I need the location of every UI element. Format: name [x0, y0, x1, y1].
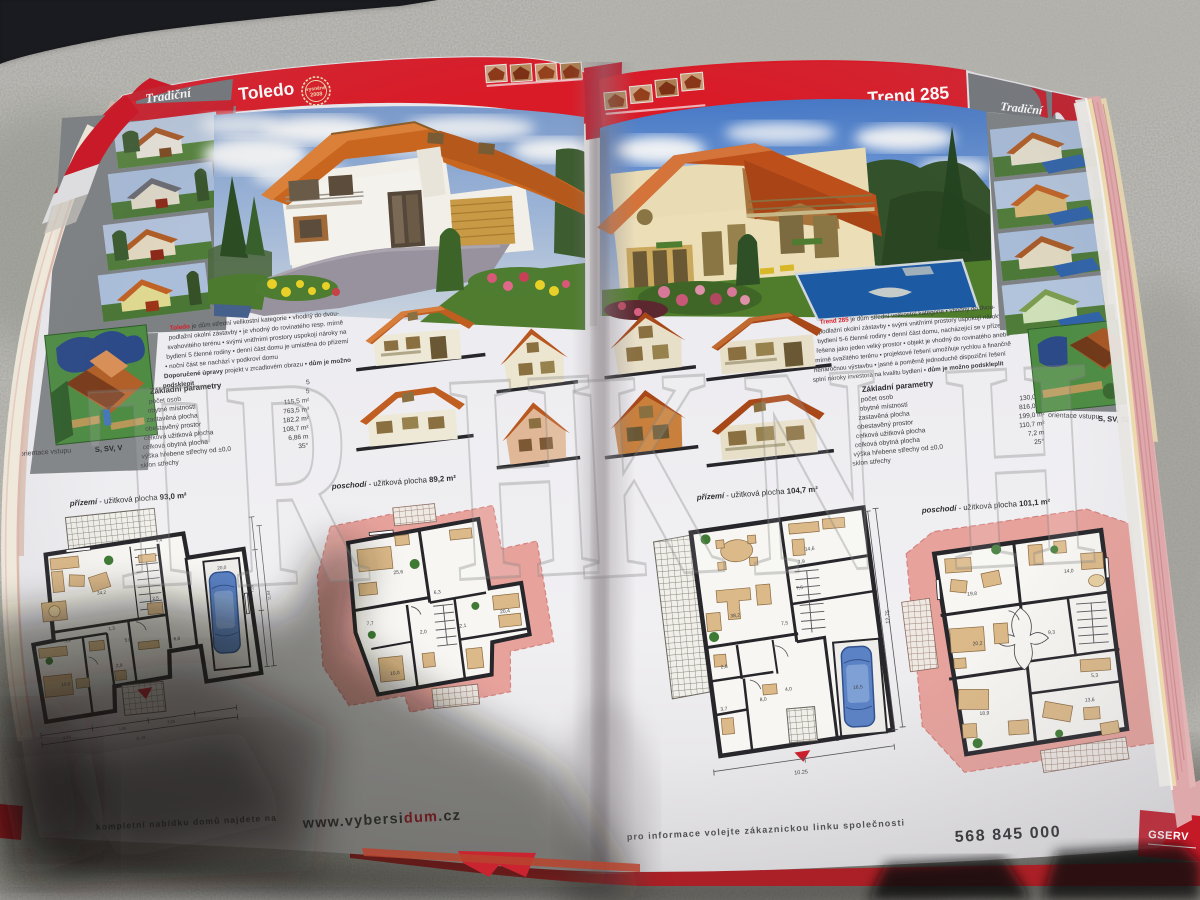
svg-text:H: H	[939, 295, 1101, 634]
svg-text:T: T	[82, 316, 223, 654]
svg-text:R: R	[220, 313, 374, 651]
svg-text:N: N	[738, 301, 890, 639]
svg-text:K: K	[567, 304, 729, 643]
